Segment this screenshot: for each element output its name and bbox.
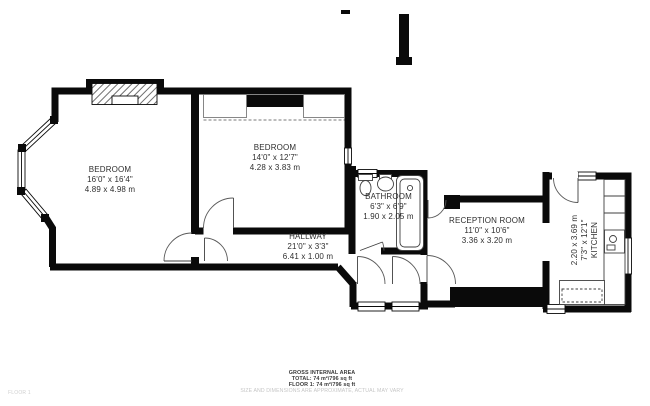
- area-summary: GROSS INTERNAL AREA TOTAL: 74 m²/796 sq …: [222, 371, 422, 395]
- basin: [378, 175, 394, 192]
- bedroom-2-window: [345, 148, 352, 164]
- door-arc-bedroom-2: [204, 198, 234, 228]
- floorplan-drawing: [0, 0, 650, 406]
- bathroom-corner-wall: [346, 166, 356, 177]
- room-label-reception: RECEPTION ROOM 11'0" x 10'6" 3.36 x 3.20…: [417, 216, 557, 246]
- kitchen-side-window: [625, 238, 632, 274]
- boundary-wall-foot: [396, 57, 412, 65]
- door-arc-bedroom-1: [164, 233, 192, 261]
- room-size-imperial: 14'0" x 12'7": [205, 153, 345, 163]
- door-arc-hallway: [205, 238, 228, 261]
- room-name: BEDROOM: [205, 143, 345, 153]
- room-size-imperial: 6'3" x 6'9": [330, 202, 447, 212]
- kitchen-sink: [605, 230, 625, 253]
- room-size-metric: 4.28 x 3.83 m: [205, 163, 345, 173]
- room-size-imperial: 7'3" x 12'1": [580, 180, 590, 300]
- room-size-imperial: 16'0" x 16'4": [40, 175, 180, 185]
- floor-tag: FLOOR 1: [8, 390, 31, 396]
- room-label-bedroom-2: BEDROOM 14'0" x 12'7" 4.28 x 3.83 m: [205, 143, 345, 173]
- kitchen-top-window: [578, 172, 596, 180]
- room-name: BEDROOM: [40, 165, 180, 175]
- door-arc-reception: [427, 256, 456, 285]
- kitchen-door-opening: [552, 172, 578, 180]
- floorplan-canvas: BEDROOM 16'0" x 16'4" 4.89 x 4.98 m BEDR…: [0, 0, 650, 406]
- boundary-tick: [341, 10, 350, 14]
- room-name: RECEPTION ROOM: [417, 216, 557, 226]
- room-name: HALLWAY: [238, 232, 378, 242]
- entrance-door: [392, 302, 419, 311]
- entrance-door: [358, 302, 385, 311]
- rear-door: [547, 305, 565, 314]
- room-size-metric: 2.20 x 3.69 m: [570, 180, 580, 300]
- chimney-breast-bedroom-2: [246, 95, 304, 107]
- room-name: BATHROOM: [330, 192, 447, 202]
- room-size-metric: 3.36 x 3.20 m: [417, 236, 557, 246]
- room-label-hallway: HALLWAY 21'0" x 3'3" 6.41 x 1.00 m: [238, 232, 378, 262]
- boundary-wall-marker: [399, 14, 409, 60]
- door-arc-entrance-2: [393, 257, 421, 285]
- room-label-kitchen: 2.20 x 3.69 m 7'3" x 12'1" KITCHEN: [570, 180, 602, 300]
- room-size-imperial: 11'0" x 10'6": [417, 226, 557, 236]
- disclaimer: SIZE AND DIMENSIONS ARE APPROXIMATE, ACT…: [222, 389, 422, 395]
- room-size-metric: 4.89 x 4.98 m: [40, 185, 180, 195]
- room-size-metric: 6.41 x 1.00 m: [238, 252, 378, 262]
- room-label-bedroom-1: BEDROOM 16'0" x 16'4" 4.89 x 4.98 m: [40, 165, 180, 195]
- room-size-imperial: 21'0" x 3'3": [238, 242, 378, 252]
- rear-wall-band: [450, 287, 546, 307]
- room-name: KITCHEN: [590, 180, 600, 300]
- chimney-hatched-bedroom-1: [92, 84, 157, 105]
